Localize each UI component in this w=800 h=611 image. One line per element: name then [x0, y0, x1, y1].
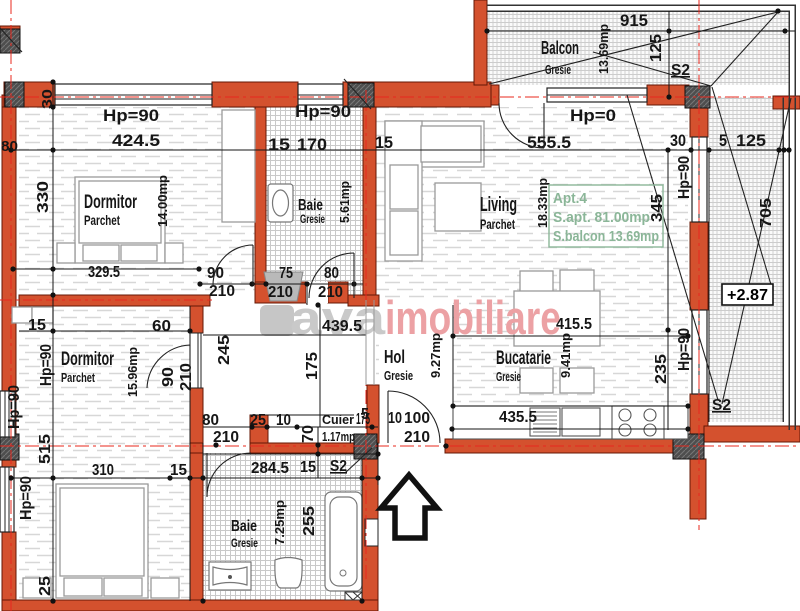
- svg-text:60: 60: [152, 318, 171, 335]
- svg-text:90: 90: [160, 367, 177, 387]
- svg-text:80: 80: [202, 412, 219, 429]
- svg-text:210: 210: [209, 283, 235, 300]
- svg-text:75: 75: [279, 265, 293, 282]
- svg-text:15: 15: [268, 135, 290, 154]
- svg-text:25: 25: [250, 412, 266, 429]
- svg-text:705: 705: [758, 198, 775, 228]
- svg-text:9.41mp: 9.41mp: [558, 333, 573, 378]
- svg-text:+2.87: +2.87: [727, 287, 768, 304]
- svg-text:10: 10: [276, 412, 291, 429]
- svg-text:9.27mp: 9.27mp: [428, 333, 443, 378]
- svg-text:90: 90: [207, 265, 224, 282]
- svg-text:S2: S2: [712, 397, 731, 414]
- svg-text:S.balcon 13.69mp: S.balcon 13.69mp: [553, 228, 659, 245]
- svg-text:Hp=90: Hp=90: [295, 102, 351, 121]
- svg-text:80: 80: [1, 138, 18, 155]
- svg-text:S.apt. 81.00mp: S.apt. 81.00mp: [553, 209, 650, 226]
- svg-text:Dormitor: Dormitor: [84, 192, 137, 213]
- svg-text:15.96mp: 15.96mp: [125, 347, 140, 397]
- svg-text:13.69mp: 13.69mp: [596, 24, 611, 74]
- svg-text:Balcon: Balcon: [541, 38, 579, 58]
- svg-text:415.5: 415.5: [556, 316, 592, 333]
- svg-text:15: 15: [170, 462, 187, 479]
- svg-text:435.5: 435.5: [499, 409, 537, 426]
- svg-text:30: 30: [39, 89, 56, 109]
- svg-text:7.25mp: 7.25mp: [272, 500, 287, 545]
- svg-text:Gresie: Gresie: [545, 62, 571, 77]
- svg-text:15: 15: [28, 317, 46, 334]
- svg-text:Dormitor: Dormitor: [61, 349, 114, 370]
- svg-text:330: 330: [35, 181, 52, 213]
- svg-text:125: 125: [736, 131, 766, 150]
- svg-text:Hp=90: Hp=90: [38, 344, 55, 386]
- svg-text:235: 235: [653, 354, 670, 384]
- svg-text:515: 515: [37, 434, 54, 464]
- svg-text:125: 125: [648, 34, 665, 62]
- svg-text:80: 80: [324, 265, 339, 282]
- svg-text:S2: S2: [330, 458, 347, 475]
- svg-text:Hp=90: Hp=90: [676, 328, 693, 371]
- svg-text:Gresie: Gresie: [384, 368, 413, 383]
- svg-text:Hp=0: Hp=0: [570, 106, 616, 125]
- svg-text:15: 15: [300, 459, 316, 476]
- svg-text:170: 170: [297, 135, 327, 154]
- svg-text:Parchet: Parchet: [61, 370, 95, 385]
- svg-text:Gresie: Gresie: [300, 212, 325, 226]
- svg-text:329.5: 329.5: [88, 264, 120, 281]
- svg-text:255: 255: [301, 506, 318, 536]
- svg-text:5: 5: [719, 131, 727, 150]
- svg-text:915: 915: [620, 11, 648, 30]
- svg-text:Hp=90: Hp=90: [6, 385, 23, 429]
- svg-text:Apt.4: Apt.4: [553, 190, 588, 207]
- svg-text:284.5: 284.5: [251, 460, 289, 477]
- svg-text:210: 210: [213, 429, 239, 446]
- svg-text:Baie: Baie: [231, 518, 257, 535]
- svg-text:S2: S2: [671, 62, 690, 79]
- svg-text:Parchet: Parchet: [84, 212, 120, 228]
- svg-text:Cuier: Cuier: [322, 412, 354, 427]
- svg-text:10: 10: [388, 410, 402, 427]
- svg-text:25: 25: [37, 576, 54, 596]
- svg-text:210: 210: [178, 363, 195, 391]
- svg-text:Living: Living: [480, 194, 517, 216]
- svg-text:100: 100: [404, 410, 430, 427]
- svg-text:Hol: Hol: [384, 347, 405, 367]
- svg-text:210: 210: [404, 429, 430, 446]
- svg-text:5: 5: [361, 406, 369, 423]
- svg-text:18.33mp: 18.33mp: [535, 178, 550, 228]
- svg-text:15: 15: [375, 133, 393, 152]
- svg-text:175: 175: [304, 352, 321, 380]
- svg-text:Hp=90: Hp=90: [676, 156, 693, 199]
- svg-text:Bucatarie: Bucatarie: [496, 348, 551, 369]
- svg-text:424.5: 424.5: [112, 131, 160, 150]
- svg-text:555.5: 555.5: [527, 133, 571, 152]
- svg-text:210: 210: [318, 284, 343, 301]
- svg-text:Hp=90: Hp=90: [18, 476, 35, 520]
- svg-text:5.61mp: 5.61mp: [337, 181, 352, 223]
- svg-text:14.00mp: 14.00mp: [155, 175, 170, 227]
- svg-text:Gresie: Gresie: [496, 369, 521, 384]
- svg-text:439.5: 439.5: [322, 318, 362, 335]
- svg-text:70: 70: [300, 425, 317, 443]
- svg-text:30: 30: [670, 131, 686, 150]
- svg-text:1.17mp: 1.17mp: [322, 429, 355, 444]
- svg-text:210: 210: [268, 284, 293, 301]
- svg-text:310: 310: [92, 462, 114, 479]
- svg-text:Parchet: Parchet: [480, 216, 515, 232]
- svg-text:Hp=90: Hp=90: [103, 106, 159, 125]
- svg-text:Gresie: Gresie: [231, 536, 258, 550]
- svg-text:245: 245: [216, 335, 233, 365]
